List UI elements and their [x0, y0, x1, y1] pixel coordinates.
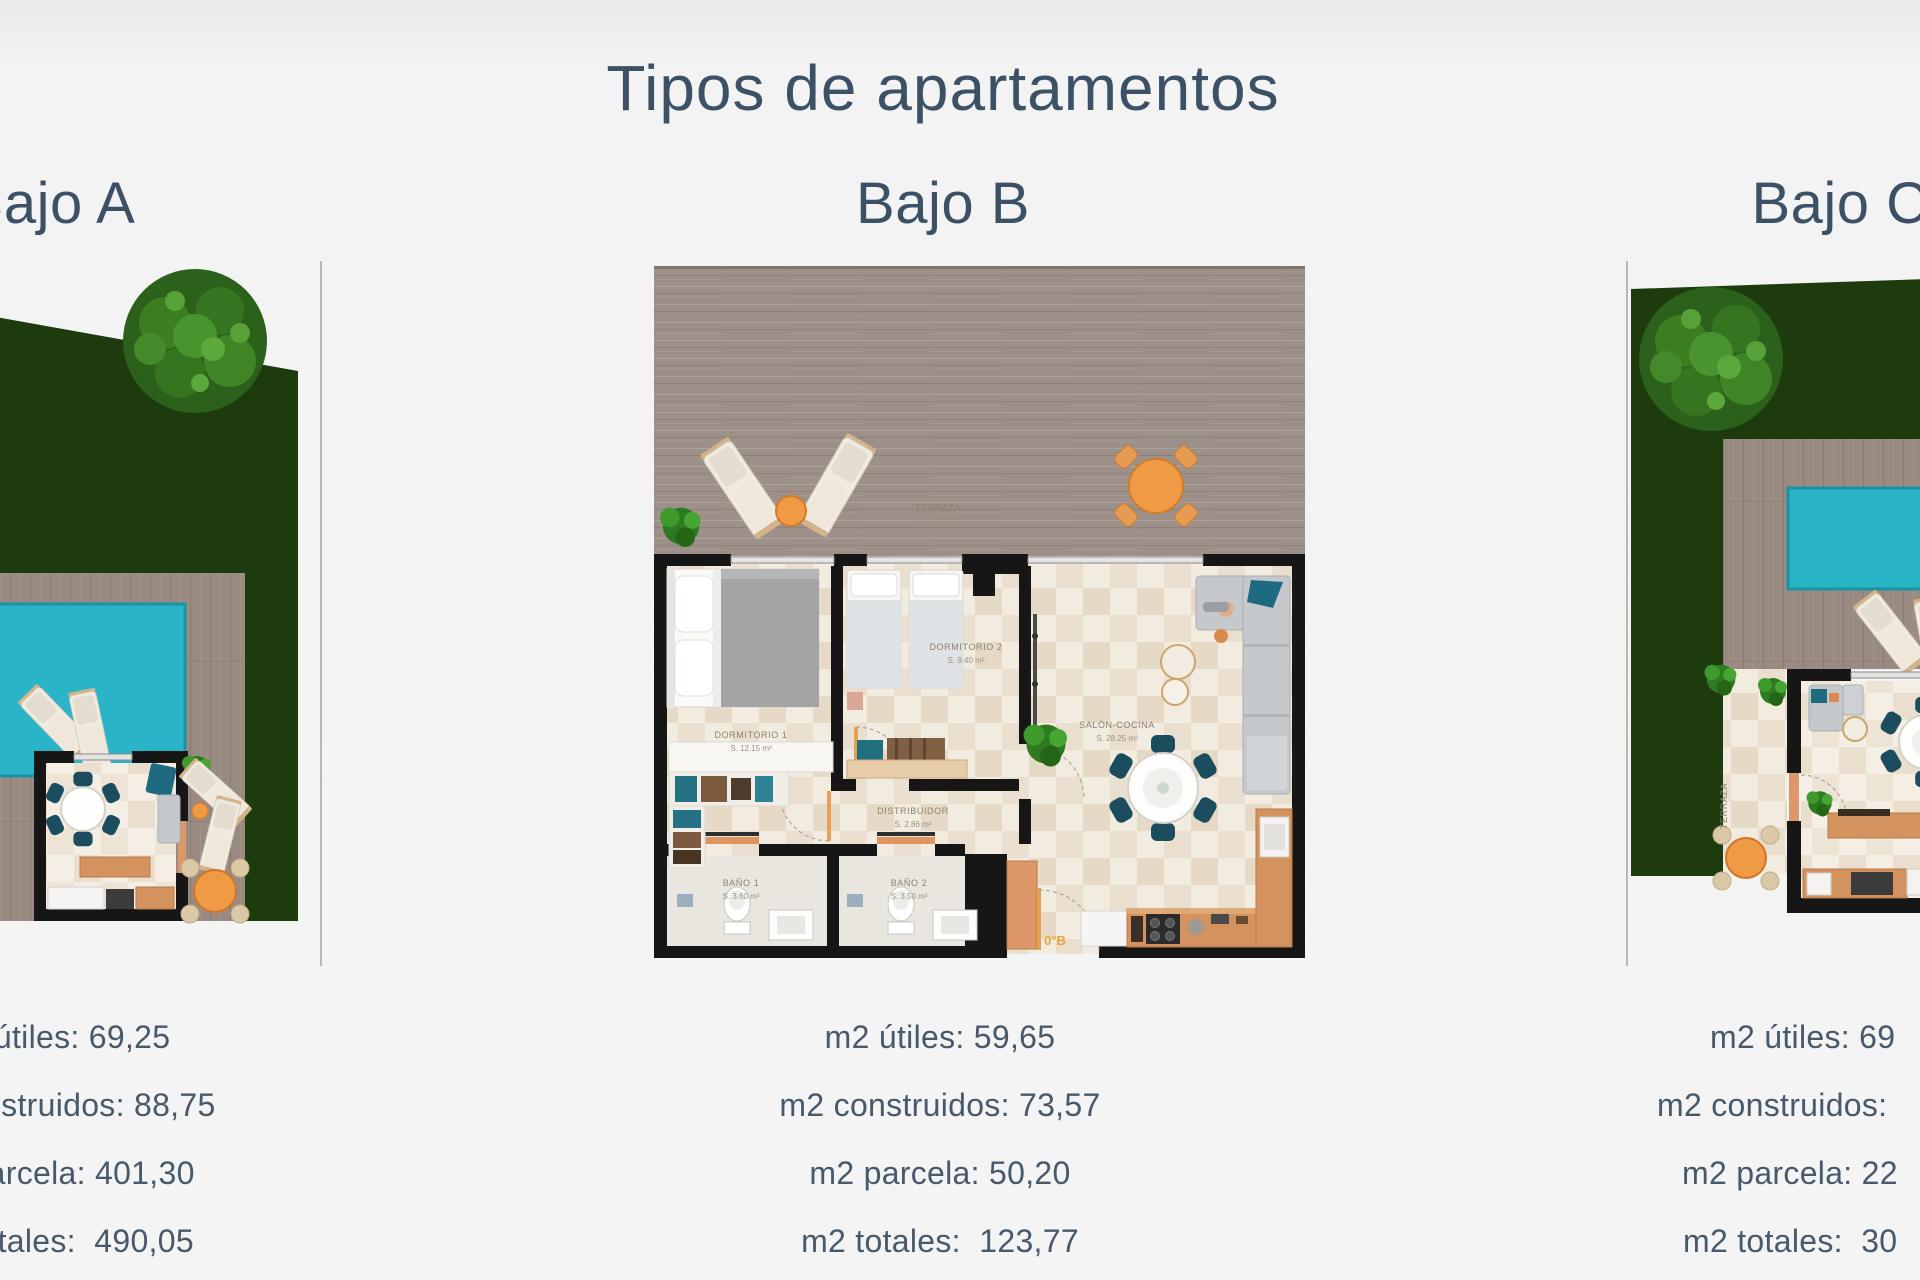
stat-parcela-b: m2 parcela: 50,20	[580, 1139, 1300, 1207]
label-dormitorio2-area: S. 9.40 m²	[948, 656, 985, 665]
floorplan-image-bajo-b[interactable]: TERRAZA S. 10.20 m² DORMITORIO 1 S. 12.1…	[651, 264, 1308, 966]
floorplan-image-bajo-a[interactable]	[0, 261, 322, 966]
label-dormitorio1-area: S. 12.15 m²	[730, 744, 772, 753]
apartment-title-bajo-a: Bajo A	[0, 166, 410, 242]
label-salon-cocina: SALÓN-COCINA	[1079, 720, 1155, 730]
label-terraza-area: S. 10.20 m²	[917, 517, 959, 526]
pool-c	[1788, 488, 1920, 589]
label-bano1: BAÑO 1	[723, 878, 760, 888]
stat-totales-b: m2 totales: 123,77	[580, 1207, 1300, 1275]
tree-icon	[1639, 287, 1783, 431]
label-bano2: BAÑO 2	[891, 878, 928, 888]
floorplan-svg-bajo-c: TERRAZA	[1623, 261, 1920, 966]
label-terraza-c: TERRAZA	[1719, 783, 1729, 829]
stat-utiles-a: m2 útiles: 69,25	[0, 1003, 415, 1071]
stat-utiles-c: m2 útiles: 69	[1710, 1003, 1895, 1071]
label-distribuidor: DISTRIBUIDOR	[877, 806, 949, 816]
label-bano2-area: S. 3.50 m²	[891, 892, 928, 901]
floorplan-image-bajo-c[interactable]: TERRAZA	[1623, 261, 1920, 966]
image-border-c	[1626, 261, 1628, 966]
tree-icon	[123, 269, 267, 413]
stat-construidos-a: m2 construidos: 88,75	[0, 1071, 415, 1139]
stats-bajo-a: m2 útiles: 69,25 m2 construidos: 88,75 m…	[0, 1003, 415, 1275]
page-title: Tipos de apartamentos	[0, 45, 1886, 131]
stat-construidos-c: m2 construidos:	[1657, 1071, 1887, 1139]
label-dormitorio1: DORMITORIO 1	[714, 730, 787, 740]
apartment-a	[34, 751, 188, 921]
label-dormitorio2: DORMITORIO 2	[929, 642, 1002, 652]
label-distribuidor-area: S. 2.86 m²	[895, 820, 932, 829]
stat-totales-c: m2 totales: 30	[1683, 1207, 1897, 1275]
stat-construidos-b: m2 construidos: 73,57	[580, 1071, 1300, 1139]
stat-utiles-b: m2 útiles: 59,65	[580, 1003, 1300, 1071]
stats-bajo-b: m2 útiles: 59,65 m2 construidos: 73,57 m…	[580, 1003, 1300, 1275]
floorplan-svg-bajo-b: TERRAZA S. 10.20 m² DORMITORIO 1 S. 12.1…	[651, 264, 1308, 966]
label-salon-cocina-area: S. 28.25 m²	[1096, 734, 1138, 743]
apartment-c	[1787, 669, 1920, 913]
stat-totales-a: m2 totales: 490,05	[0, 1207, 415, 1275]
label-bano1-area: S. 3.60 m²	[723, 892, 760, 901]
image-border-a	[320, 261, 322, 966]
stat-parcela-c: m2 parcela: 22	[1682, 1139, 1898, 1207]
floorplan-svg-bajo-a	[0, 261, 322, 966]
apartment-title-bajo-c: Bajo C	[1480, 166, 1920, 242]
label-entry-door: 0°B	[1044, 933, 1066, 948]
label-terraza: TERRAZA	[915, 503, 961, 513]
apartment-title-bajo-b: Bajo B	[583, 166, 1303, 242]
stat-parcela-a: m2 parcela: 401,30	[0, 1139, 415, 1207]
